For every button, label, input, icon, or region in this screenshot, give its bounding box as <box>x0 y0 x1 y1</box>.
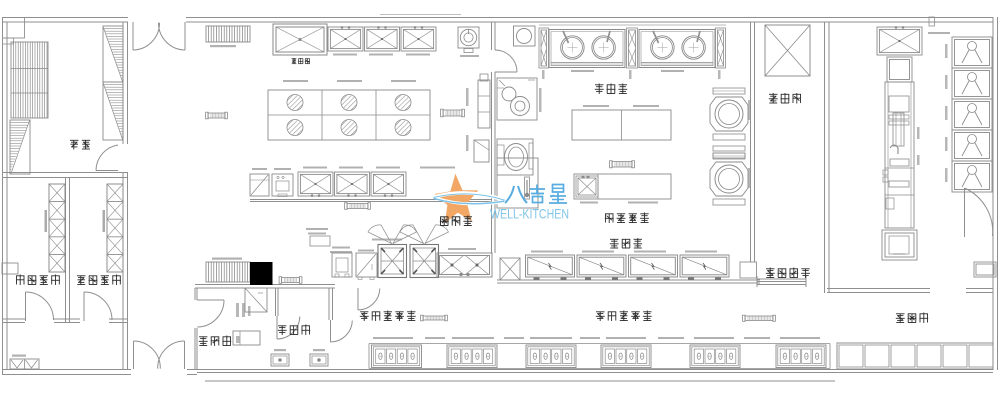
svg-text:WELL-KITCHEN: WELL-KITCHEN <box>490 206 569 222</box>
